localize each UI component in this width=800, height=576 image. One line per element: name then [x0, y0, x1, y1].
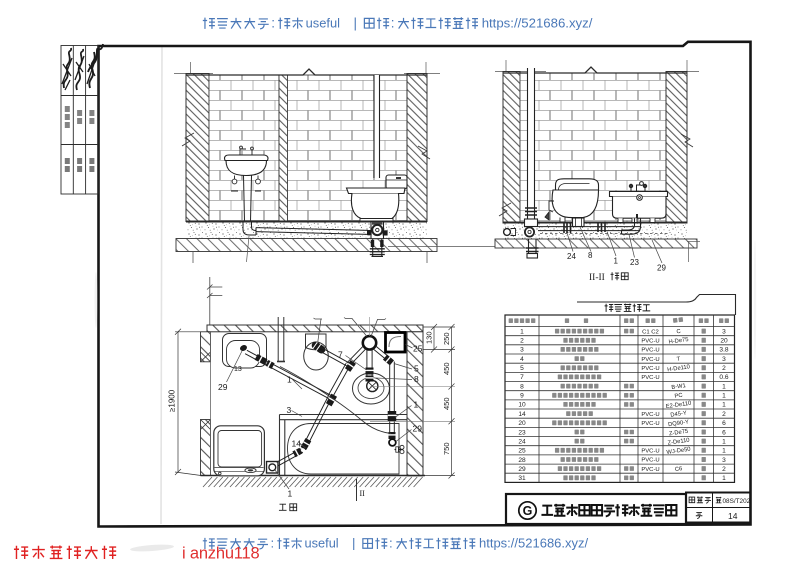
svg-text:14: 14: [518, 411, 526, 418]
svg-text:23: 23: [518, 429, 526, 436]
svg-text:PVC-U: PVC-U: [641, 449, 659, 455]
svg-text:5: 5: [520, 365, 524, 372]
svg-text:4: 4: [520, 356, 524, 363]
svg-text::: :: [271, 536, 275, 551]
svg-text:250: 250: [442, 332, 451, 345]
svg-text:PVC-U: PVC-U: [641, 412, 659, 418]
svg-text:8: 8: [588, 251, 593, 260]
svg-text:3: 3: [520, 347, 524, 354]
svg-text:i anzhu118: i anzhu118: [182, 545, 260, 563]
svg-text:3.8: 3.8: [719, 347, 728, 354]
svg-text:25: 25: [518, 448, 526, 455]
svg-text:130: 130: [425, 331, 434, 344]
svg-text:1: 1: [722, 448, 726, 455]
svg-text:0.6: 0.6: [719, 374, 728, 381]
svg-text::: :: [391, 16, 395, 31]
svg-text:|: |: [354, 15, 358, 30]
svg-text:10: 10: [518, 402, 526, 409]
svg-text:8: 8: [520, 383, 524, 390]
svg-text:PVC-U: PVC-U: [641, 458, 659, 464]
svg-text:C: C: [676, 329, 681, 336]
svg-text:13: 13: [234, 366, 242, 373]
svg-text:PVC-U: PVC-U: [641, 357, 659, 363]
svg-text:1: 1: [614, 257, 619, 266]
svg-text:1: 1: [722, 393, 726, 400]
svg-text:G: G: [523, 504, 533, 518]
svg-text:3: 3: [722, 356, 726, 363]
svg-text:PVC-U: PVC-U: [641, 421, 659, 427]
svg-text:6: 6: [722, 429, 726, 436]
svg-text:14: 14: [728, 511, 738, 521]
svg-text:08S/T202: 08S/T202: [723, 498, 751, 505]
svg-text:450: 450: [442, 362, 451, 375]
svg-text:20: 20: [720, 338, 728, 345]
svg-text::: :: [271, 16, 275, 31]
svg-text:1: 1: [722, 383, 726, 390]
svg-text:9: 9: [520, 393, 524, 400]
svg-text:750: 750: [442, 442, 451, 455]
svg-text:useful: useful: [306, 16, 340, 31]
svg-text:6: 6: [722, 420, 726, 427]
svg-text:PVC-U: PVC-U: [641, 366, 659, 372]
svg-text:1: 1: [288, 489, 293, 499]
svg-text:28: 28: [518, 457, 526, 464]
svg-text:PVC-U: PVC-U: [641, 467, 659, 473]
svg-text:29: 29: [218, 382, 228, 392]
svg-text:1: 1: [414, 400, 419, 410]
svg-text:20: 20: [518, 420, 526, 427]
svg-text:24: 24: [567, 252, 576, 261]
svg-text:II-II: II-II: [589, 273, 605, 283]
svg-text:useful: useful: [305, 536, 339, 551]
svg-text:8: 8: [414, 374, 419, 384]
svg-text:25: 25: [413, 344, 423, 354]
svg-text:1: 1: [287, 375, 292, 385]
svg-text:PVC-U: PVC-U: [641, 339, 659, 345]
svg-text:|: |: [352, 535, 355, 550]
svg-text:2: 2: [722, 466, 726, 473]
svg-text:23: 23: [630, 258, 639, 267]
svg-text:2: 2: [722, 365, 726, 372]
svg-text:5: 5: [414, 364, 419, 374]
svg-text:24: 24: [518, 438, 526, 445]
svg-text:II: II: [360, 489, 366, 498]
svg-text:C1 C2: C1 C2: [642, 329, 659, 335]
svg-text:1: 1: [520, 328, 524, 335]
svg-text:https://521686.xyz/: https://521686.xyz/: [482, 16, 593, 31]
svg-text:PC: PC: [674, 393, 683, 400]
svg-text:https://521686.xyz/: https://521686.xyz/: [479, 536, 589, 551]
svg-text:C6: C6: [675, 466, 683, 473]
svg-text:3: 3: [722, 328, 726, 335]
svg-text:7: 7: [520, 374, 524, 381]
svg-text:14: 14: [292, 439, 302, 449]
svg-text:31: 31: [518, 475, 526, 482]
svg-text:2: 2: [520, 338, 524, 345]
svg-text:1: 1: [722, 438, 726, 445]
svg-text:2: 2: [722, 411, 726, 418]
svg-text::: :: [389, 536, 393, 551]
svg-text:7: 7: [338, 350, 343, 360]
svg-text:3: 3: [722, 457, 726, 464]
svg-text:29: 29: [518, 466, 526, 473]
svg-text:PVC-U: PVC-U: [641, 348, 659, 354]
svg-text:29: 29: [657, 264, 666, 273]
svg-text:1: 1: [722, 475, 726, 482]
svg-text:450: 450: [442, 397, 451, 410]
svg-text:≥1900: ≥1900: [168, 389, 177, 412]
svg-text:1: 1: [722, 402, 726, 409]
svg-text:PVC-U: PVC-U: [641, 375, 659, 381]
svg-text:29: 29: [413, 424, 423, 434]
svg-text:3: 3: [287, 405, 292, 415]
